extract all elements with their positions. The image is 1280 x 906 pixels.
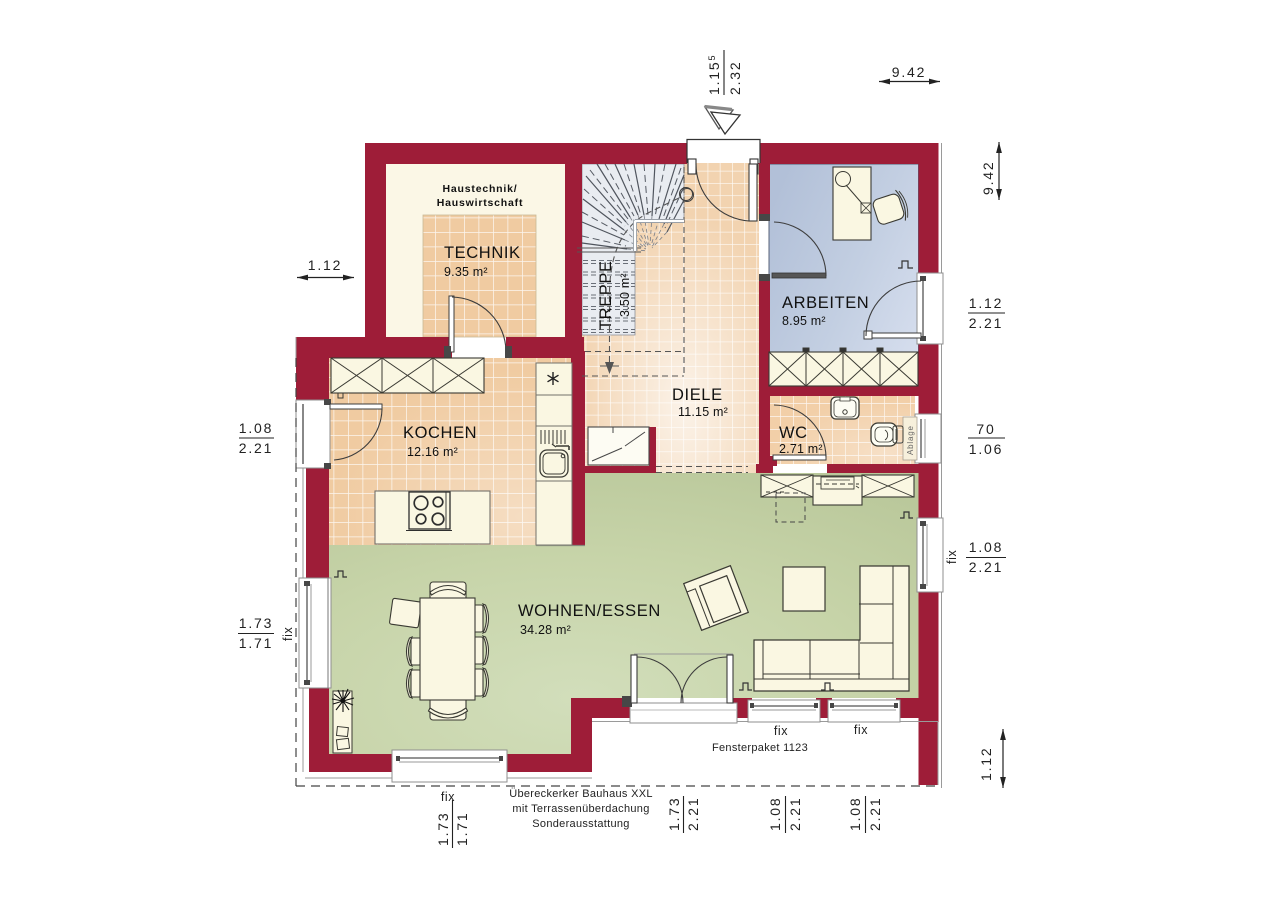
svg-text:TREPPE: TREPPE [597, 260, 615, 330]
svg-text:DIELE: DIELE [672, 386, 723, 404]
svg-text:Übereckerker Bauhaus XXL: Übereckerker Bauhaus XXL [509, 788, 653, 800]
svg-text:34.28 m²: 34.28 m² [520, 623, 571, 637]
svg-text:9.35 m²: 9.35 m² [444, 265, 488, 279]
svg-text:mit Terrassenüberdachung: mit Terrassenüberdachung [512, 803, 649, 815]
svg-text:fix: fix [441, 790, 455, 804]
svg-text:fix: fix [774, 724, 788, 738]
svg-text:1.06: 1.06 [969, 441, 1003, 457]
svg-text:2.21: 2.21 [787, 797, 803, 831]
svg-text:Hauswirtschaft: Hauswirtschaft [437, 197, 523, 209]
svg-text:TECHNIK: TECHNIK [444, 244, 521, 262]
svg-text:9.42: 9.42 [892, 64, 926, 80]
svg-text:1.12: 1.12 [969, 295, 1003, 311]
svg-text:1.73: 1.73 [666, 797, 682, 831]
svg-text:1.71: 1.71 [239, 635, 273, 651]
svg-text:1.08: 1.08 [767, 797, 783, 831]
svg-text:2.32: 2.32 [727, 61, 743, 95]
svg-text:Ablage: Ablage [906, 425, 915, 455]
svg-text:1.08: 1.08 [847, 797, 863, 831]
svg-text:2.21: 2.21 [867, 797, 883, 831]
svg-text:1.08: 1.08 [969, 539, 1003, 555]
svg-text:3.50 m²: 3.50 m² [618, 273, 632, 317]
svg-text:Haustechnik/: Haustechnik/ [443, 183, 518, 195]
svg-text:1.08: 1.08 [239, 420, 273, 436]
svg-text:1.12: 1.12 [978, 747, 994, 781]
svg-text:12.16 m²: 12.16 m² [407, 445, 458, 459]
svg-text:11.15 m²: 11.15 m² [678, 405, 728, 419]
svg-text:1.71: 1.71 [454, 812, 470, 846]
svg-text:Fensterpaket 1123: Fensterpaket 1123 [712, 742, 808, 754]
svg-text:70: 70 [976, 421, 995, 437]
svg-text:fix: fix [854, 723, 868, 737]
svg-text:8.95 m²: 8.95 m² [782, 314, 826, 328]
svg-text:WC: WC [779, 424, 808, 442]
svg-text:9.42: 9.42 [980, 161, 996, 195]
svg-text:Sonderausstattung: Sonderausstattung [532, 818, 629, 830]
svg-text:fix: fix [945, 550, 959, 564]
svg-text:2.21: 2.21 [239, 440, 273, 456]
svg-text:1.73: 1.73 [435, 812, 451, 846]
svg-text:WOHNEN/ESSEN: WOHNEN/ESSEN [518, 602, 661, 620]
svg-text:2.21: 2.21 [969, 559, 1003, 575]
svg-text:1.73: 1.73 [239, 615, 273, 631]
svg-text:2.21: 2.21 [685, 797, 701, 831]
svg-text:1.12: 1.12 [308, 257, 342, 273]
svg-text:2.71 m²: 2.71 m² [779, 442, 823, 456]
svg-text:KOCHEN: KOCHEN [403, 424, 477, 442]
svg-text:fix: fix [281, 627, 295, 641]
svg-text:2.21: 2.21 [969, 315, 1003, 331]
svg-text:ARBEITEN: ARBEITEN [782, 294, 869, 312]
